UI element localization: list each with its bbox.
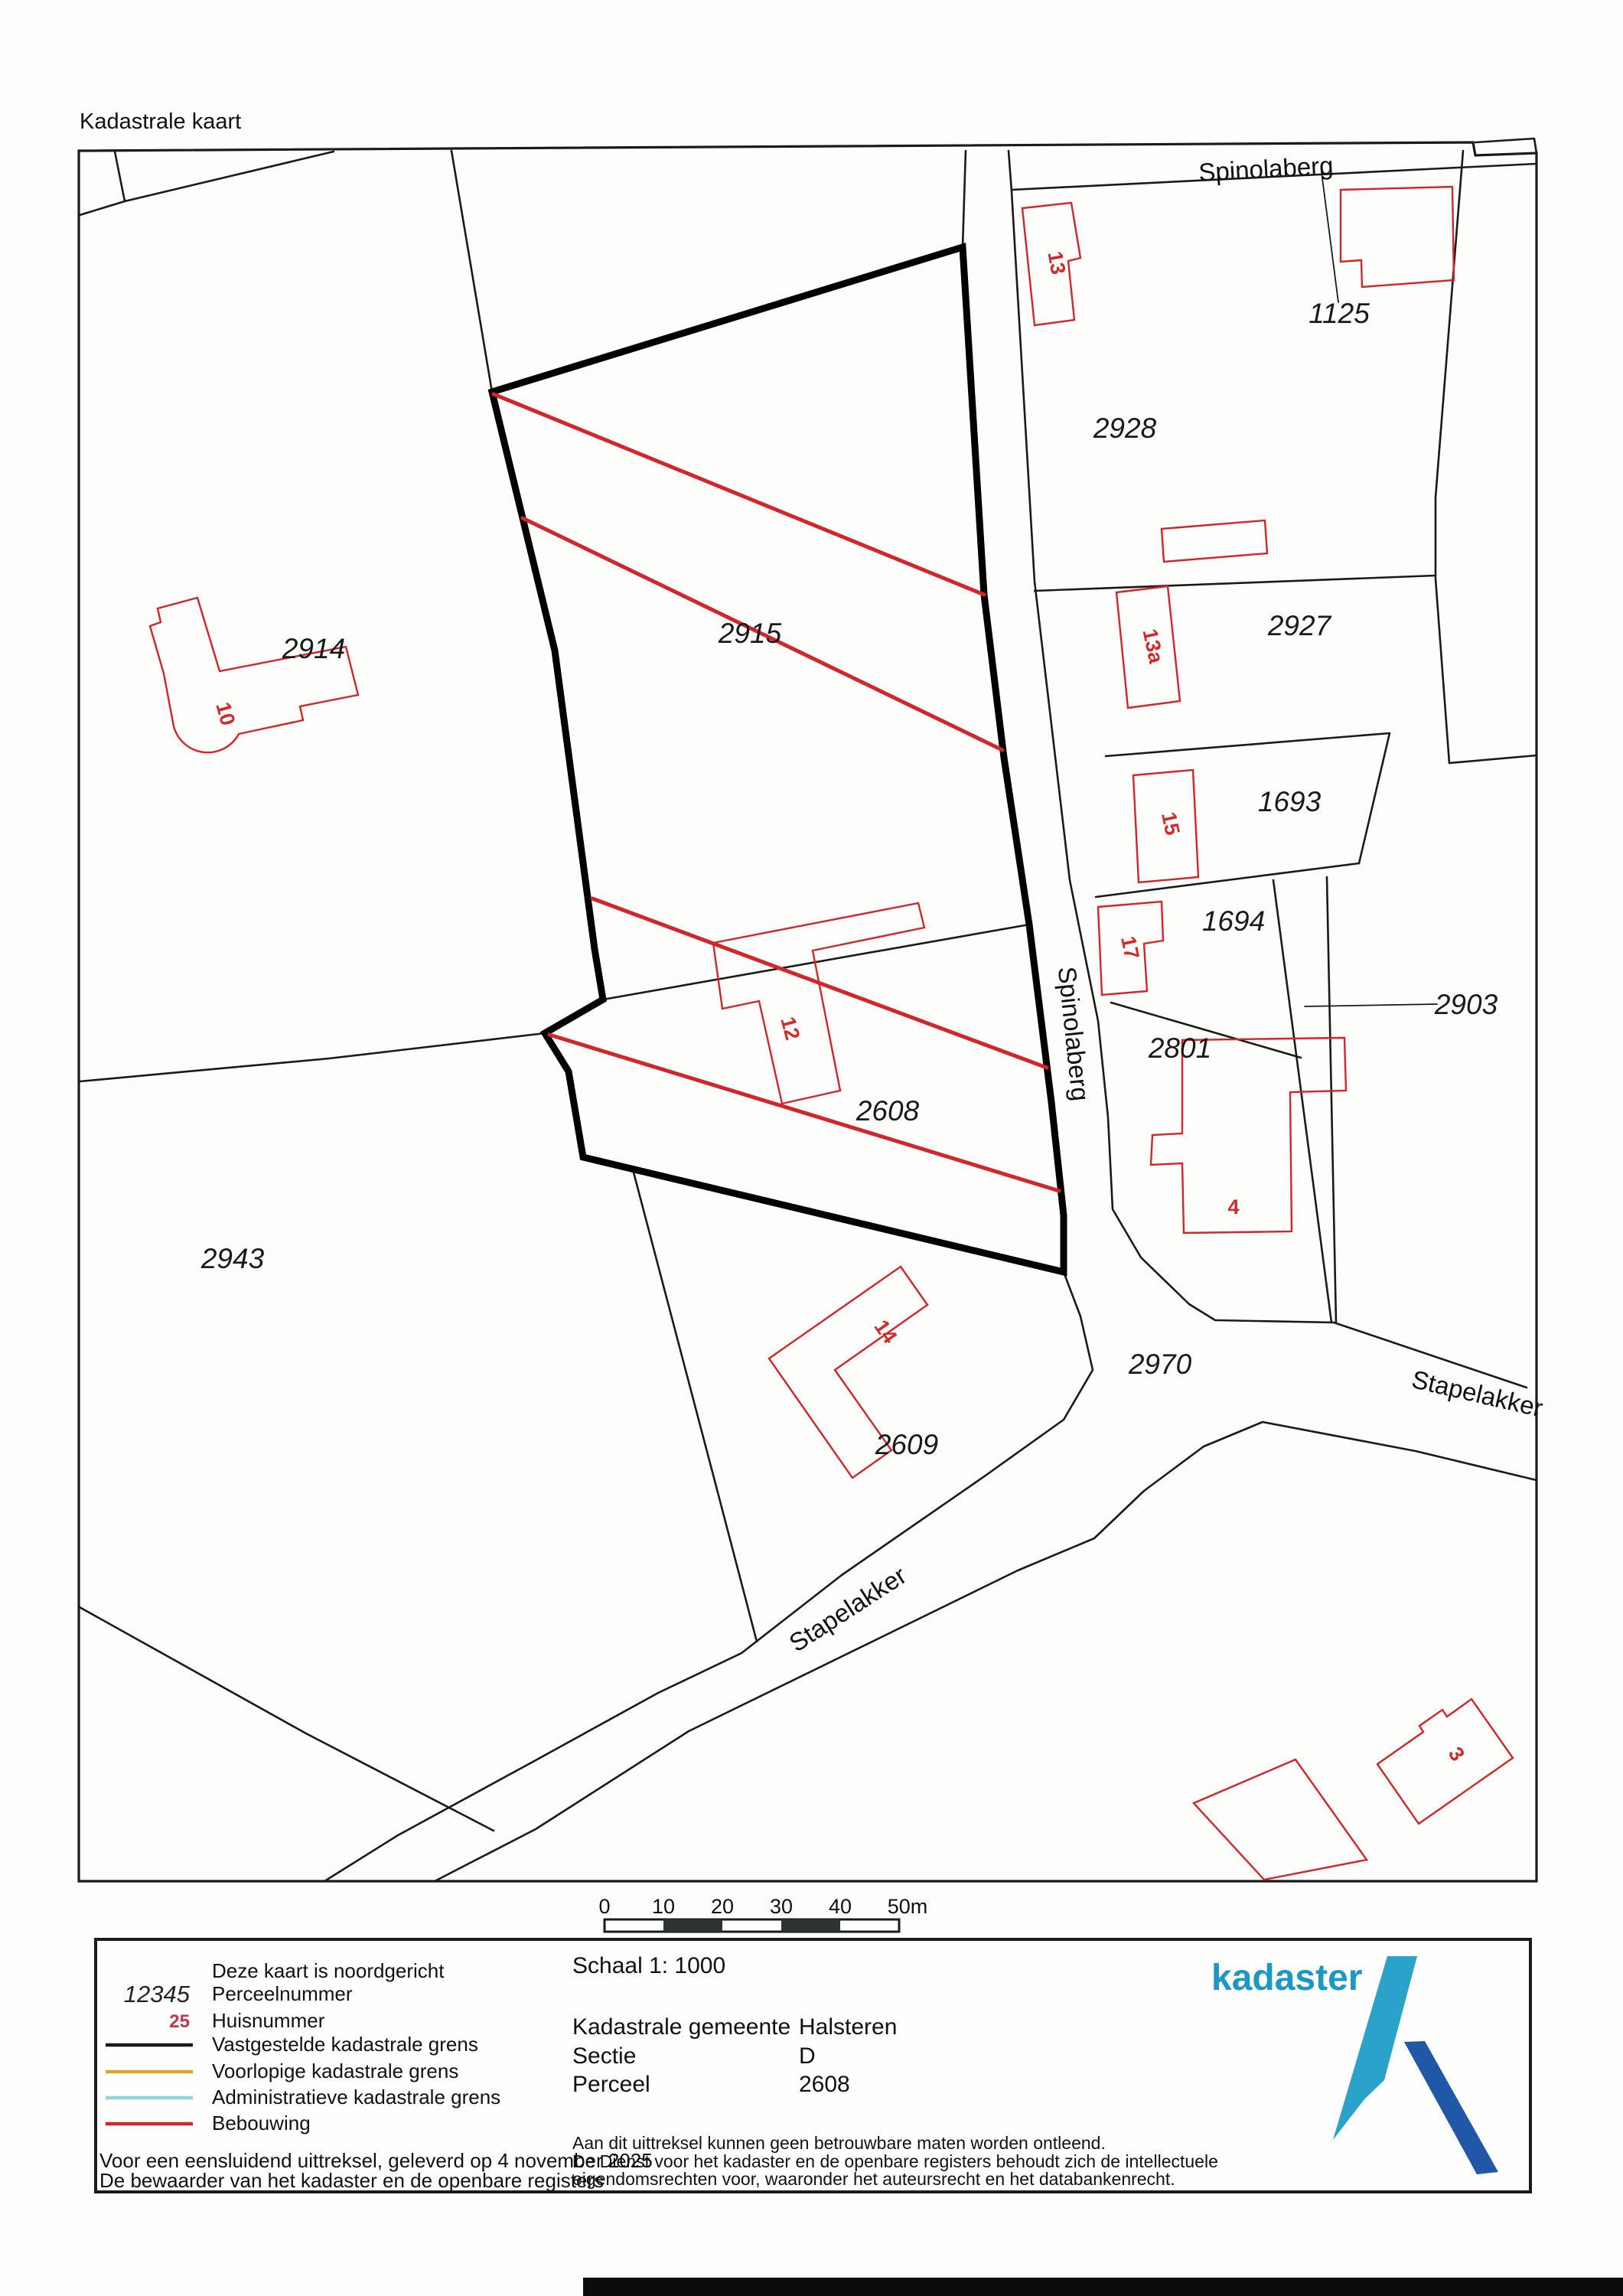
info-sectie-label: Sectie: [572, 2043, 636, 2069]
stapelakker-north-edge: [324, 1272, 1093, 1881]
parcel-labels: 2914 2915 2928 2927 1693 1694 2608 2801 …: [200, 298, 1498, 1460]
scale-bar-outline: [605, 1919, 899, 1932]
parcel-label-1693: 1693: [1258, 786, 1322, 817]
boundary-line: [451, 151, 492, 392]
boundary-line-southwest: [80, 1607, 494, 1831]
parcel-label-1125: 1125: [1309, 298, 1370, 329]
parcel-label-2915: 2915: [718, 618, 782, 649]
info-schaal: Schaal 1: 1000: [572, 1953, 725, 1978]
boundary-line: [115, 152, 125, 201]
scale-tick-50m: 50m: [888, 1895, 928, 1918]
legend-huis-label: Huisnummer: [212, 2009, 325, 2032]
street-label-spinolaberg-top: Spinolaberg: [1198, 151, 1334, 186]
street-label-stapelakker-e: Stapelakker: [1410, 1365, 1546, 1422]
page-title: Kadastrale kaart: [80, 109, 241, 134]
house-number-labels: 13 13a 15 17 10 12 4 14 3: [211, 249, 1469, 1766]
house-label-13a: 13a: [1138, 627, 1168, 666]
strip-2903-east: [1327, 877, 1336, 1322]
house-label-17: 17: [1116, 934, 1144, 961]
building-unlabeled-south: [1194, 1760, 1367, 1880]
legend-perceel-sample: 12345: [124, 1981, 191, 2007]
scale-bar-segment-dark: [781, 1919, 840, 1932]
legend-line1-label: Vastgestelde kadastrale grens: [212, 2033, 478, 2056]
scale-bar: 0 10 20 30 40 50m: [598, 1895, 927, 1932]
leader-2903: [1305, 1004, 1437, 1006]
house-label-13: 13: [1043, 249, 1070, 276]
house-label-15: 15: [1157, 810, 1185, 837]
street-label-stapelakker-sw: Stapelakker: [784, 1561, 911, 1657]
boundary-2943-2609: [633, 1169, 757, 1642]
boundary-line: [1449, 755, 1537, 763]
legend-north-note: Deze kaart is noordgericht: [212, 1959, 445, 1982]
house-label-3: 3: [1444, 1743, 1469, 1766]
info-gemeente-label: Kadastrale gemeente: [572, 2014, 790, 2040]
boundary-2927-1693: [1106, 733, 1390, 756]
info-sectie-value: D: [799, 2043, 816, 2069]
building-10: [150, 598, 358, 752]
boundary-2915-2608: [603, 925, 1029, 1000]
parcel-label-1694: 1694: [1202, 905, 1265, 937]
boundary-line: [125, 152, 334, 201]
legend-line3-label: Administratieve kadastrale grens: [212, 2086, 500, 2108]
subject-parcel-bold-boundary: [492, 247, 1064, 1272]
legend-huis-sample: 25: [169, 2011, 190, 2032]
info-perceel-value: 2608: [799, 2072, 850, 2097]
bebouwing-line: [494, 394, 984, 595]
house-label-4: 4: [1227, 1195, 1239, 1218]
parcel-label-2903: 2903: [1434, 989, 1498, 1020]
legend-box: Deze kaart is noordgericht 12345 Perceel…: [96, 1939, 1530, 2192]
parcel-label-2608: 2608: [855, 1095, 920, 1127]
building-12: [713, 903, 924, 1104]
parcel-label-2943: 2943: [200, 1243, 265, 1274]
bebouwing-lines: [494, 394, 1059, 1191]
parcel-label-2914: 2914: [282, 633, 345, 664]
house-label-10: 10: [211, 700, 240, 728]
parcel-label-2927: 2927: [1267, 610, 1332, 641]
scale-tick-0: 0: [598, 1895, 610, 1918]
building-3: [1377, 1699, 1513, 1824]
legend-line4-label: Bebouwing: [212, 2112, 311, 2135]
scale-tick-20: 20: [711, 1895, 734, 1918]
house-label-12: 12: [776, 1014, 804, 1042]
info-disclaimer-line1: Aan dit uittreksel kunnen geen betrouwba…: [572, 2133, 1106, 2153]
parcel-label-2609: 2609: [875, 1429, 938, 1460]
info-disclaimer-line3: eigendomsrechten voor, waaronder het aut…: [572, 2169, 1175, 2189]
kadastrale-kaart-page: Kadastrale kaart: [0, 0, 1623, 2296]
scale-bar-segment-dark: [663, 1919, 722, 1932]
legend-line2-label: Voorlopige kadastrale grens: [212, 2060, 458, 2082]
parcel-label-2970: 2970: [1128, 1349, 1192, 1380]
scale-tick-40: 40: [829, 1895, 852, 1918]
street-label-spinolaberg-side: Spinolaberg: [1053, 965, 1095, 1102]
legend-footer-line2: De bewaarder van het kadaster en de open…: [99, 2169, 604, 2192]
building-unlabeled-2927: [1162, 520, 1267, 562]
boundary-right-strip: [1436, 151, 1463, 763]
parcel-label-2928: 2928: [1093, 413, 1157, 444]
boundary-1693-1694: [1096, 863, 1359, 897]
stapelakker-south-edge: [435, 1422, 1537, 1881]
scale-tick-30: 30: [770, 1895, 793, 1918]
boundary-2914-2943: [80, 1033, 545, 1081]
parcel-label-2801: 2801: [1148, 1032, 1211, 1064]
info-perceel-label: Perceel: [572, 2072, 650, 2097]
scale-tick-10: 10: [652, 1895, 675, 1918]
boundary-line: [80, 201, 125, 215]
info-gemeente-value: Halsteren: [799, 2014, 897, 2040]
strip-2903-west: [1273, 880, 1331, 1322]
map-border-notch: [1475, 139, 1537, 153]
road-edge: [963, 151, 966, 247]
kadaster-logo-text: kadaster: [1211, 1958, 1362, 1998]
building-unlabeled-2928: [1341, 187, 1454, 287]
road-edge: [1009, 151, 1012, 191]
leader-1125: [1322, 172, 1338, 302]
legend-perceel-label: Perceelnummer: [212, 1982, 353, 2005]
boundary-1693-east: [1359, 733, 1390, 863]
scan-artifact-strip: [583, 2278, 1623, 2296]
boundary-2928-2927: [1035, 576, 1436, 591]
